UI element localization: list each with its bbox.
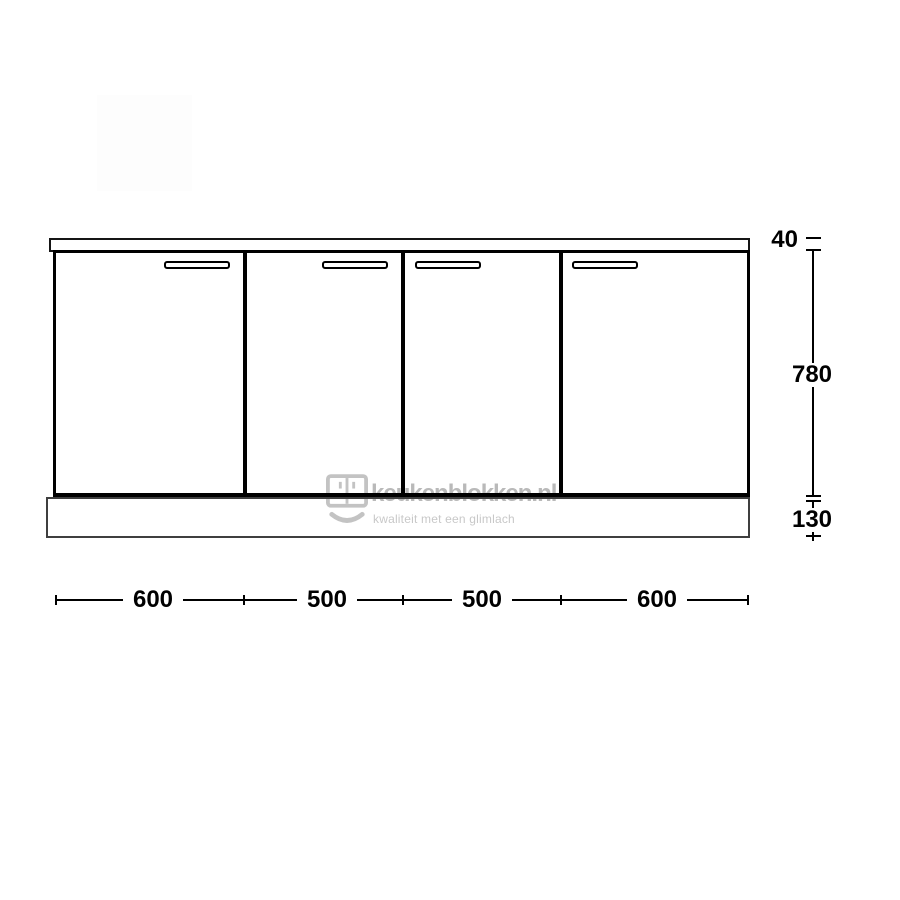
dim-label-width-500-left: 500 xyxy=(297,588,357,612)
door-handle-3 xyxy=(415,261,481,269)
dim-label-width-600-right: 600 xyxy=(627,588,687,612)
faint-background-artifact xyxy=(97,95,192,191)
dim-tick-width-1 xyxy=(243,595,245,605)
dim-label-countertop-40: 40 xyxy=(754,228,798,252)
door-handle-1 xyxy=(164,261,230,269)
dim-tick-width-3 xyxy=(560,595,562,605)
dim-label-plinth-130: 130 xyxy=(786,508,838,532)
dim-label-width-500-right: 500 xyxy=(452,588,512,612)
door-handle-4 xyxy=(572,261,638,269)
dim-tick-width-2 xyxy=(402,595,404,605)
dim-label-width-600-left: 600 xyxy=(123,588,183,612)
door-divider-2 xyxy=(401,253,405,494)
technical-drawing-canvas: keukenblokken.nl kwaliteit met een gliml… xyxy=(0,0,900,900)
dim-label-doors-780: 780 xyxy=(786,363,838,387)
dim-tick-width-4 xyxy=(747,595,749,605)
dim-tick-countertop-top xyxy=(806,237,821,239)
door-divider-1 xyxy=(243,253,247,494)
door-divider-3 xyxy=(559,253,563,494)
dim-tick-width-0 xyxy=(55,595,57,605)
dim-tick-door-bottom xyxy=(806,495,821,497)
door-handle-2 xyxy=(322,261,388,269)
plinth-outline xyxy=(46,497,750,538)
dim-tick-plinth-bottom xyxy=(806,535,821,537)
